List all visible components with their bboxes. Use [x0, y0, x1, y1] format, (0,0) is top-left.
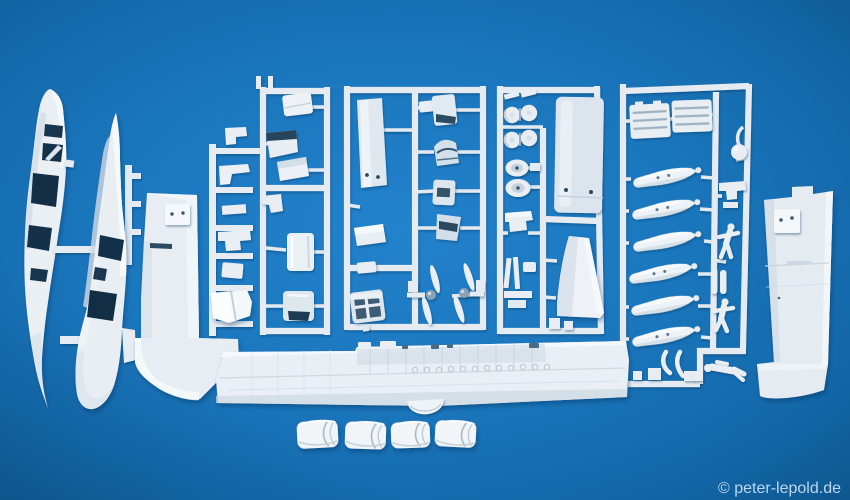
svg-text:© peter-lepold.de: © peter-lepold.de: [718, 480, 841, 497]
